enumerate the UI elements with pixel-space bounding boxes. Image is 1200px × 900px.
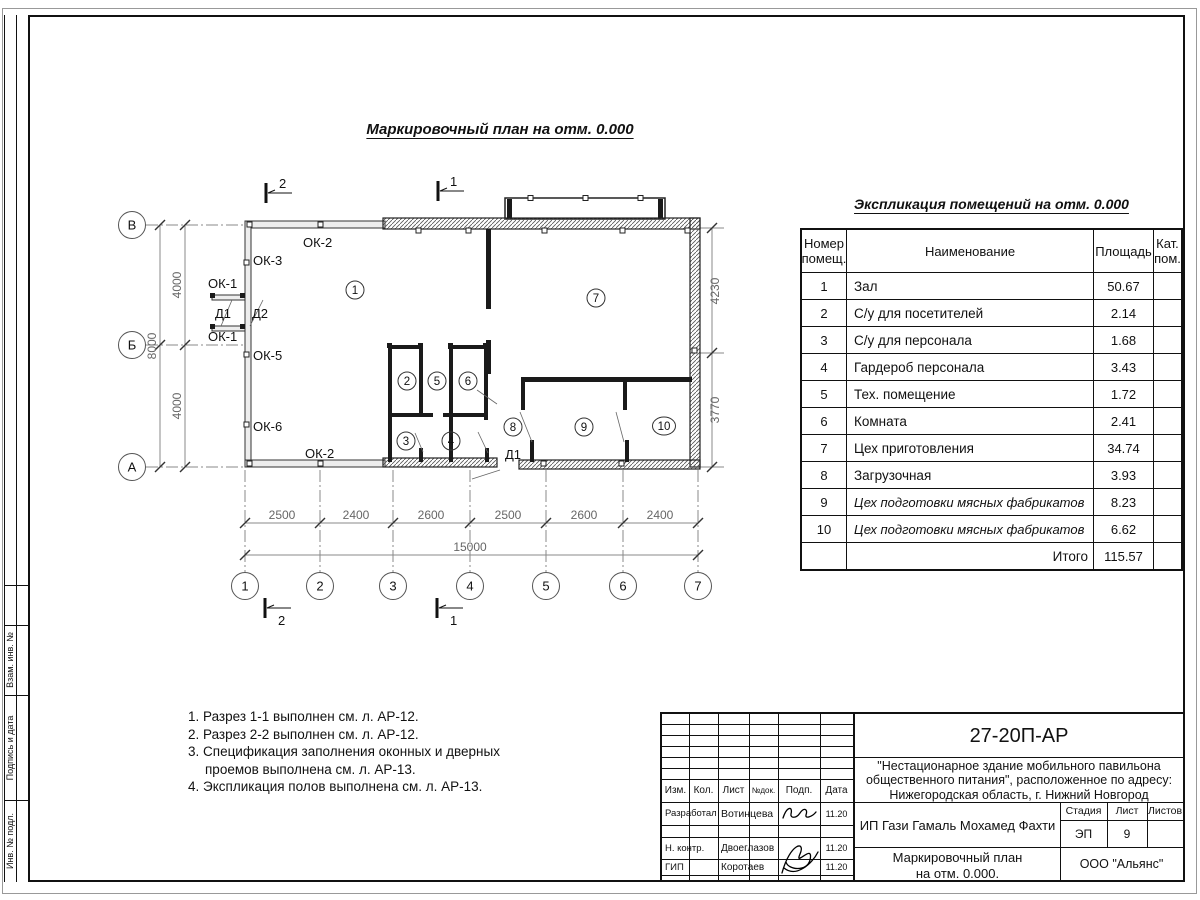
dim-label: 8000	[145, 332, 159, 359]
room-category-cell	[1154, 435, 1181, 461]
room-category-cell	[1154, 489, 1181, 515]
dim-label: 2600	[571, 508, 598, 522]
room-number: 9	[581, 422, 587, 434]
total-value-cell: 115.57	[1094, 543, 1154, 569]
room-number-cell: 6	[802, 408, 847, 434]
room-name-cell: Цех приготовления	[847, 435, 1094, 461]
window-label: ОК-2	[305, 446, 334, 461]
axis-label: 7	[694, 579, 701, 594]
axis-label: 2	[316, 579, 323, 594]
room-number: 2	[404, 376, 410, 388]
dim-label: 4230	[708, 277, 722, 304]
project-description-line: Нижегородская область, г. Нижний Новгоро…	[855, 788, 1183, 802]
room-area-cell: 2.14	[1094, 300, 1154, 326]
col-izm: Изм.	[662, 779, 689, 802]
dim-label: 4000	[170, 392, 184, 419]
door-label: Д1	[215, 306, 231, 321]
total-empty-cell	[802, 543, 847, 569]
explication-row: 2С/у для посетителей2.14	[802, 299, 1181, 326]
page-title: Маркировочный план на отм. 0.000	[290, 121, 710, 138]
room-number: 1	[352, 285, 358, 297]
room-number-cell: 7	[802, 435, 847, 461]
room-number-cell: 1	[802, 273, 847, 299]
window-label: ОК-6	[253, 419, 282, 434]
sheets-value	[1147, 820, 1183, 847]
explication-row: 5Тех. помещение1.72	[802, 380, 1181, 407]
axis-label: А	[128, 460, 137, 475]
room-name-cell: Гардероб персонала	[847, 354, 1094, 380]
stamp-column-line	[16, 15, 17, 882]
room-number: 6	[465, 376, 471, 388]
row-axis-markers: В Б А	[119, 212, 146, 481]
section-number: 1	[450, 613, 457, 628]
window-label: ОК-3	[253, 253, 282, 268]
floor-plan: 4000 4000 8000 4230 3770 2500 2400 2600 …	[90, 155, 750, 640]
date-ncontrol: 11.20	[820, 837, 853, 859]
col-doc: №док.	[749, 779, 778, 802]
revision-rows	[662, 714, 853, 779]
sheet-header: Лист	[1107, 802, 1147, 820]
room-number-cell: 3	[802, 327, 847, 353]
room-area-cell: 2.41	[1094, 408, 1154, 434]
signature	[780, 803, 818, 824]
role-ncontrol: Н. контр.	[662, 837, 718, 859]
room-number: 8	[510, 422, 516, 434]
room-category-cell	[1154, 408, 1181, 434]
dim-label: 2400	[343, 508, 370, 522]
dim-label: 2400	[647, 508, 674, 522]
room-category-cell	[1154, 462, 1181, 488]
company-name: ООО "Альянс"	[1060, 847, 1183, 880]
dim-label: 2500	[269, 508, 296, 522]
title-block: Изм. Кол. Лист №док. Подп. Дата Разработ…	[660, 712, 1185, 882]
window-marks	[244, 222, 697, 466]
room-markers: 1 2 3 4 5 6 7 8 9 10	[346, 281, 676, 450]
header-category: Кат. пом.	[1154, 230, 1181, 272]
explication-table-body: 1Зал50.672С/у для посетителей2.143С/у дл…	[802, 272, 1181, 569]
room-area-cell: 8.23	[1094, 489, 1154, 515]
room-category-cell	[1154, 273, 1181, 299]
room-name-cell: Зал	[847, 273, 1094, 299]
notes-list: 1. Разрез 1-1 выполнен см. л. АР-12.2. Р…	[188, 708, 512, 796]
explication-title: Экспликация помещений на отм. 0.000	[800, 196, 1183, 212]
name-ncontrol: Двоеглазов	[718, 837, 778, 859]
room-number: 4	[448, 436, 455, 448]
room-name-cell: С/у для персонала	[847, 327, 1094, 353]
col-podp: Подп.	[778, 779, 820, 802]
client-name: ИП Гази Гамаль Мохамед Фахти	[855, 803, 1060, 847]
note-item: 1. Разрез 1-1 выполнен см. л. АР-12.	[188, 708, 512, 726]
section-number: 2	[279, 176, 286, 191]
room-number-cell: 9	[802, 489, 847, 515]
axis-label: 6	[619, 579, 626, 594]
stamp-divider	[4, 695, 28, 696]
room-number-cell: 5	[802, 381, 847, 407]
dim-label: 2600	[418, 508, 445, 522]
explication-table: Номер помещ. Наименование Площадь Кат. п…	[800, 228, 1183, 571]
col-data: Дата	[820, 779, 853, 802]
col-kol: Кол.	[689, 779, 718, 802]
room-area-cell: 34.74	[1094, 435, 1154, 461]
role-gip: ГИП	[662, 859, 718, 875]
axis-label: 3	[389, 579, 396, 594]
room-category-cell	[1154, 354, 1181, 380]
name-gip: Коротаев	[718, 859, 778, 875]
axis-label: 1	[241, 579, 248, 594]
room-number-cell: 8	[802, 462, 847, 488]
section-number: 1	[450, 174, 457, 189]
room-number: 10	[658, 421, 671, 433]
dim-label: 4000	[170, 271, 184, 298]
stamp-divider	[4, 585, 28, 586]
window-label: ОК-1	[208, 276, 237, 291]
window-label: ОК-5	[253, 348, 282, 363]
room-category-cell	[1154, 381, 1181, 407]
side-stamp-label: Подпись и дата	[5, 716, 15, 781]
room-area-cell: 6.62	[1094, 516, 1154, 542]
room-name-cell: Цех подготовки мясных фабрикатов	[847, 489, 1094, 515]
note-item: 4. Экспликация полов выполнена см. л. АР…	[188, 778, 512, 796]
side-stamp-label: Взам. инв. №	[5, 632, 15, 688]
header-name: Наименование	[847, 230, 1094, 272]
room-category-cell	[1154, 327, 1181, 353]
room-area-cell: 1.72	[1094, 381, 1154, 407]
document-number: 27-20П-АР	[855, 716, 1183, 757]
date-developer: 11.20	[820, 802, 853, 825]
room-number-cell: 2	[802, 300, 847, 326]
role-developer: Разработал	[662, 802, 718, 825]
room-number-cell: 4	[802, 354, 847, 380]
note-item: 3. Спецификация заполнения оконных и две…	[188, 743, 512, 778]
dim-label: 2500	[495, 508, 522, 522]
sheet-title: Маркировочный план на отм. 0.000.	[855, 850, 1060, 881]
axis-label: 4	[466, 579, 473, 594]
section-number: 2	[278, 613, 285, 628]
stamp-divider	[4, 625, 28, 626]
sheets-header: Листов	[1147, 802, 1183, 820]
project-description: "Нестационарное здание мобильного павиль…	[855, 759, 1183, 802]
header-area: Площадь	[1094, 230, 1154, 272]
exterior-walls	[245, 218, 700, 469]
room-area-cell: 3.93	[1094, 462, 1154, 488]
sheet-title-line: на отм. 0.000.	[855, 866, 1060, 882]
sheet-value: 9	[1107, 820, 1147, 847]
explication-row: 4Гардероб персонала3.43	[802, 353, 1181, 380]
project-description-line: "Нестационарное здание мобильного павиль…	[855, 759, 1183, 773]
col-axis-markers: 1 2 3 4 5 6 7	[232, 573, 712, 600]
col-list: Лист	[718, 779, 749, 802]
total-category-cell	[1154, 543, 1181, 569]
stage-header: Стадия	[1060, 802, 1107, 820]
room-name-cell: Комната	[847, 408, 1094, 434]
explication-row: 9Цех подготовки мясных фабрикатов8.23	[802, 488, 1181, 515]
stage-value: ЭП	[1060, 820, 1107, 847]
room-number: 3	[403, 436, 409, 448]
room-category-cell	[1154, 516, 1181, 542]
explication-total-row: Итого115.57	[802, 542, 1181, 569]
axis-label: 5	[542, 579, 549, 594]
stamp-divider	[4, 800, 28, 801]
room-number: 5	[434, 376, 440, 388]
room-category-cell	[1154, 300, 1181, 326]
header-room-number: Номер помещ.	[802, 230, 847, 272]
explication-row: 8Загрузочная3.93	[802, 461, 1181, 488]
explication-header-row: Номер помещ. Наименование Площадь Кат. п…	[802, 230, 1181, 272]
explication-row: 7Цех приготовления34.74	[802, 434, 1181, 461]
door-label: Д2	[252, 306, 268, 321]
window-label: ОК-2	[303, 235, 332, 250]
total-label-cell: Итого	[847, 543, 1094, 569]
axis-label: В	[128, 218, 137, 233]
dim-label: 3770	[708, 396, 722, 423]
room-name-cell: Цех подготовки мясных фабрикатов	[847, 516, 1094, 542]
section-marks: 2 1 2 1	[265, 174, 464, 628]
signature	[776, 835, 822, 879]
room-area-cell: 3.43	[1094, 354, 1154, 380]
room-area-cell: 1.68	[1094, 327, 1154, 353]
name-developer: Вотинцева	[718, 802, 778, 825]
door-label: Д1	[505, 447, 521, 462]
sheet-title-line: Маркировочный план	[855, 850, 1060, 866]
room-name-cell: Тех. помещение	[847, 381, 1094, 407]
room-name-cell: С/у для посетителей	[847, 300, 1094, 326]
explication-row: 1Зал50.67	[802, 272, 1181, 299]
date-gip: 11.20	[820, 859, 853, 875]
drawing-sheet: Взам. инв. № Подпись и дата Инв. № подл.…	[0, 0, 1200, 900]
window-label: ОК-1	[208, 329, 237, 344]
project-description-line: общественного питания", расположенное по…	[855, 773, 1183, 787]
room-number: 7	[593, 293, 599, 305]
room-number-cell: 10	[802, 516, 847, 542]
loading-platform	[505, 196, 665, 220]
explication-row: 6Комната2.41	[802, 407, 1181, 434]
dim-label: 15000	[453, 540, 487, 554]
explication-row: 3С/у для персонала1.68	[802, 326, 1181, 353]
axis-label: Б	[128, 338, 137, 353]
note-item: 2. Разрез 2-2 выполнен см. л. АР-12.	[188, 726, 512, 744]
interior-walls	[387, 229, 692, 462]
side-stamp-label: Инв. № подл.	[5, 813, 15, 869]
explication-row: 10Цех подготовки мясных фабрикатов6.62	[802, 515, 1181, 542]
room-name-cell: Загрузочная	[847, 462, 1094, 488]
room-area-cell: 50.67	[1094, 273, 1154, 299]
